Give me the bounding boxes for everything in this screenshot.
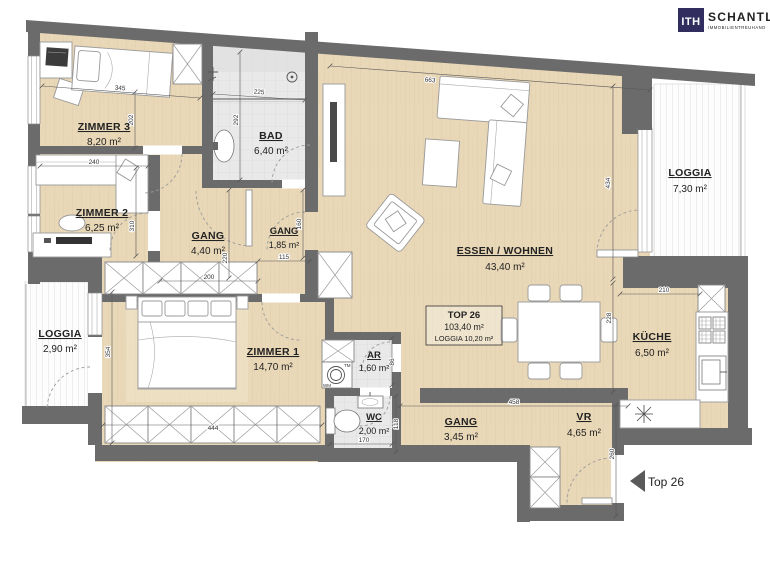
unit-loggia-area: LOGGIA 10,20 m² [435, 334, 494, 343]
vr-label: VR [576, 411, 591, 423]
tv-sideboard [323, 84, 345, 196]
dining-table [518, 302, 600, 362]
ar-area: 1,60 m² [359, 363, 390, 373]
loggia-right-label: LOGGIA [668, 167, 711, 179]
tv-icon [330, 102, 337, 162]
wm-label: WM [323, 383, 331, 388]
loggia-door-leaf [597, 250, 638, 257]
zimmer1-loggia-window [88, 293, 102, 335]
ar-label: AR [367, 350, 381, 361]
kueche-label: KÜCHE [633, 330, 672, 343]
bad-area: 6,40 m² [254, 146, 289, 157]
washing-machine: WM TM [322, 362, 352, 388]
vr-area: 4,65 m² [567, 428, 602, 439]
zimmer2-area: 6,25 m² [85, 223, 120, 234]
dim-gang2-w: 115 [279, 254, 290, 261]
wohnen-cabinet [318, 252, 352, 298]
zimmer1-bed-group [126, 296, 248, 402]
dim-kueche-d: 228 [606, 312, 613, 323]
dim-zimmer2-w: 240 [89, 159, 100, 166]
dim-gang-w: 200 [204, 274, 215, 281]
bad-wall-right [305, 32, 318, 188]
dining-chair [560, 363, 582, 379]
dim-bad-w: 225 [253, 89, 265, 97]
gang2-area: 1,85 m² [269, 240, 300, 250]
zimmer1-label: ZIMMER 1 [247, 346, 300, 358]
dining-chair [528, 285, 550, 301]
vr-wardrobe [530, 447, 560, 508]
entrance-door-leaf [582, 498, 612, 504]
ar-cabinet [322, 340, 354, 362]
kueche-area: 6,50 m² [635, 348, 670, 359]
dining-chair [528, 363, 550, 379]
unit-title: TOP 26 [448, 310, 480, 321]
coffee-table [422, 139, 459, 187]
zimmer3-wardrobe [173, 44, 202, 84]
wc-wall-bottom [318, 448, 400, 462]
gang-essen-stub-upper [305, 188, 318, 212]
toilet-icon [326, 408, 360, 434]
bad-label: BAD [259, 130, 283, 142]
floorplan-drawing: WM TM [0, 0, 770, 567]
hob-star-icon [635, 405, 653, 423]
logo-tagline: IMMOBILIENTREUHAND [708, 25, 766, 30]
basin-tap-icon [213, 142, 218, 150]
dim-wohnen-d: 434 [605, 177, 612, 188]
gang3-area: 3,45 m² [444, 432, 479, 443]
zimmer1-wall-bottom [95, 445, 325, 461]
wohnen-loggia-window [638, 124, 652, 252]
tm-label: TM [344, 363, 351, 368]
loggia-left-area: 2,90 m² [43, 344, 78, 355]
floorplan-page: WM TM [0, 0, 770, 567]
dim-wc-w: 170 [359, 437, 370, 444]
entrance-arrow-icon [630, 470, 645, 492]
wohnen-gang-wall [420, 388, 628, 403]
logo-mark: ITH [681, 16, 700, 28]
nightstand-right [237, 296, 248, 309]
brand-logo: ITH SCHANTL IMMOBILIENTREUHAND [678, 8, 770, 32]
dim-wc-d: 118 [393, 418, 400, 429]
zimmer3-area: 8,20 m² [87, 137, 122, 148]
zimmer2-label: ZIMMER 2 [76, 207, 129, 219]
gang1-area: 4,40 m² [191, 246, 226, 257]
zimmer3-window [28, 56, 40, 124]
gang-essen-stub-lower [305, 250, 318, 300]
dining-chair [560, 285, 582, 301]
unit-area: 103,40 m² [444, 322, 484, 332]
nightstand-left [126, 296, 137, 309]
dining-chair [501, 318, 517, 342]
dim-zimmer3-w: 345 [114, 85, 126, 93]
dim-zimmer1-d: 354 [105, 346, 112, 357]
logo-name: SCHANTL [708, 10, 770, 24]
gang-wardrobe-row [105, 262, 257, 294]
bad-wall-left [202, 34, 213, 188]
loggia-left-label: LOGGIA [38, 328, 81, 340]
gang3-label: GANG [445, 416, 478, 428]
kueche-wall-bottom [618, 428, 752, 445]
zimmer1-loggia-door-gap [88, 337, 102, 393]
wc-area: 2,00 m² [359, 426, 390, 436]
entrance-label: Top 26 [648, 475, 684, 489]
outer-wall-kueche-right [728, 260, 748, 432]
wohnen-label: ESSEN / WOHNEN [457, 245, 553, 257]
gang1-label: GANG [192, 230, 225, 242]
kueche-lower-counter [620, 400, 700, 428]
entrance-marker: Top 26 [630, 470, 684, 492]
kueche-shaft [698, 285, 725, 312]
zimmer3-label: ZIMMER 3 [78, 121, 131, 133]
dim-wohnen-w: 663 [424, 77, 436, 85]
unit-info-box: TOP 26 103,40 m² LOGGIA 10,20 m² [426, 306, 502, 345]
sink-icon [699, 356, 727, 390]
wc-label: WC [366, 412, 382, 423]
dim-vr-d: 260 [609, 448, 616, 459]
zimmer1-area: 14,70 m² [253, 362, 293, 373]
dim-bad-d: 292 [233, 114, 240, 125]
loggia-right-area: 7,30 m² [673, 184, 708, 195]
dim-ar-d: 86 [389, 358, 396, 366]
loggia-left-wall-bottom [22, 406, 95, 424]
gang3-wall-bottom [400, 445, 530, 462]
ar-wall-top [325, 332, 401, 340]
dim-zimmer2-d: 310 [129, 220, 136, 231]
dim-zimmer1-w: 444 [208, 425, 219, 432]
gang2-label: GANG [270, 226, 299, 237]
dim-flur-w: 458 [509, 399, 520, 406]
dim-kueche-w: 210 [659, 287, 670, 294]
wohnen-area: 43,40 m² [485, 262, 525, 273]
gang-door-leaf [246, 190, 252, 246]
